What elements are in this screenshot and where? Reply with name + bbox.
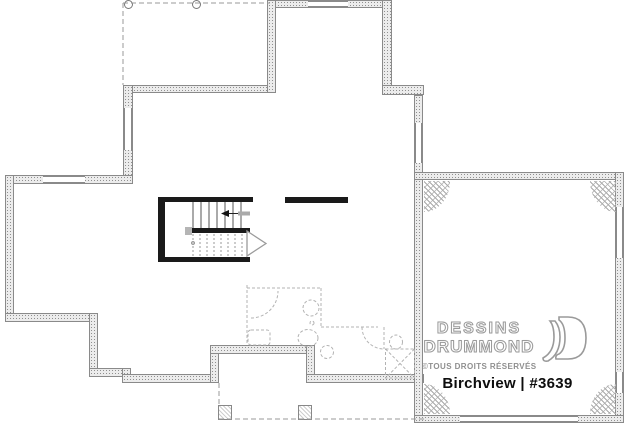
drummond-d-logo-icon: [540, 314, 590, 366]
wall-porch-north: [210, 345, 315, 354]
toilet-icon: [390, 335, 403, 349]
square-post-icon: [298, 405, 312, 420]
sink-icon: [303, 300, 319, 316]
wall-garage-north: [414, 172, 624, 180]
rear-porch-outline: [219, 383, 424, 419]
plan-title: Birchview | #3639: [415, 375, 600, 392]
copyright-text: ©TOUS DROITS RÉSERVÉS: [422, 362, 536, 371]
wall-lowerleft-south: [5, 313, 98, 322]
window-north: [308, 1, 348, 7]
sump-pit-icon: [321, 346, 334, 359]
stair-wall-left: [158, 197, 165, 262]
floor-plan-canvas: DESSINS DRUMMOND ©TOUS DROITS RÉSERVÉS B…: [0, 0, 628, 424]
logo-text-drummond: DRUMMOND: [419, 338, 539, 355]
square-post-icon: [218, 405, 232, 420]
stair-treads-lower: [193, 234, 242, 256]
stair-mid-landing-wall: [185, 228, 250, 233]
window-west-upper: [124, 108, 132, 150]
stair-dot: [192, 242, 195, 245]
window-east-house: [415, 123, 422, 163]
door-swing-icon: [362, 327, 384, 349]
wall-south-right: [306, 374, 424, 383]
stair-treads-upper: [193, 202, 241, 228]
future-bathroom-rough-in: [247, 285, 415, 378]
drain-icon: [310, 321, 314, 325]
top-porch-outline: [123, 3, 270, 85]
wall-south-left: [122, 374, 219, 383]
garage-pad-top-left: [424, 181, 450, 212]
wall-north-west-return: [267, 0, 276, 93]
stair-direction-arrow-icon: [221, 210, 250, 217]
round-post-icon: [192, 0, 201, 9]
wall-north-step: [382, 85, 424, 95]
garage-pad-top-right: [590, 181, 616, 212]
door-swing-icon: [251, 291, 278, 318]
stair-newel: [185, 227, 192, 235]
bearing-wall-segment: [285, 197, 348, 203]
window-upperleft: [43, 176, 85, 183]
wall-porch-south: [123, 85, 275, 93]
wall-west-main: [5, 175, 14, 322]
stair-chevron-icon: [247, 231, 266, 256]
wall-north-east-return: [382, 0, 392, 95]
round-post-icon: [124, 0, 133, 9]
garage-door-opening: [460, 416, 578, 422]
vanity-icon: [248, 330, 270, 345]
stair-wall-bottom: [158, 257, 250, 262]
toilet-icon: [298, 330, 318, 347]
logo-text-dessins: DESSINS: [419, 321, 539, 337]
window-garage-east-2: [616, 372, 623, 393]
stair-wall-top: [158, 197, 253, 202]
window-garage-east-1: [616, 207, 623, 258]
